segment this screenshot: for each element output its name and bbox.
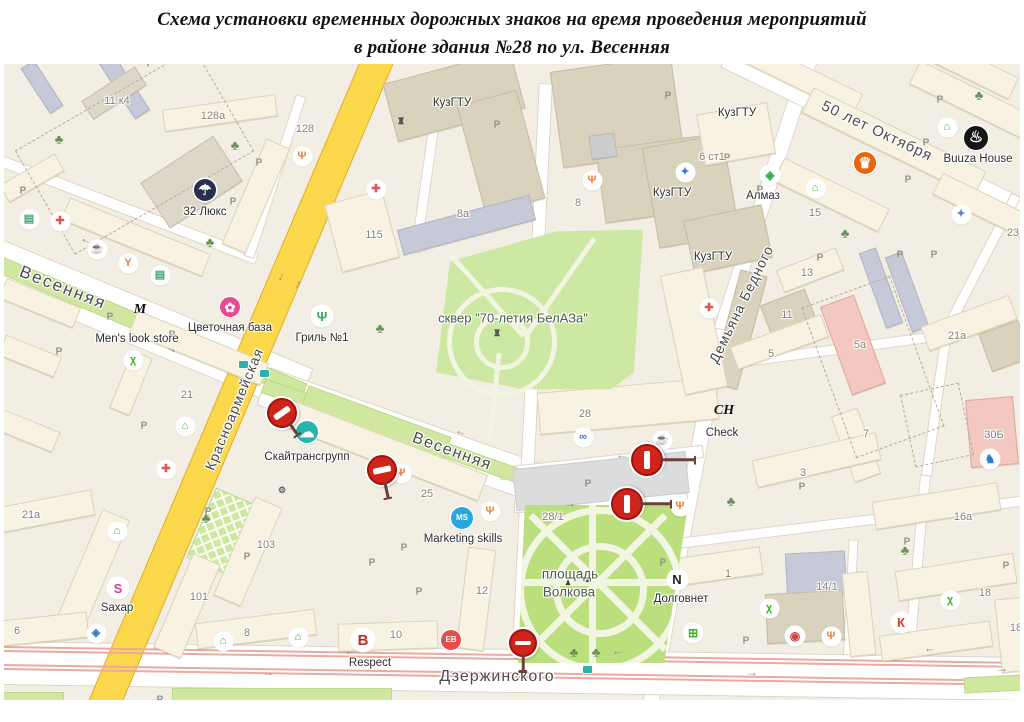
map-content: ♣♣♣♣♣♣♣♣♣♣♣→→→→→→→→→→→→→PPPPPPPPPPPPPPPP…: [4, 64, 1020, 700]
transit-stop-icon: [582, 665, 593, 674]
parking-mark: P: [56, 347, 63, 358]
building: [21, 64, 64, 114]
building-number: 11 к4: [104, 95, 129, 107]
tree-icon: ♣: [570, 645, 579, 660]
check-icon: CH: [714, 403, 734, 419]
poi-label: Check: [706, 427, 739, 439]
restaurant-icon: Ψ: [672, 498, 689, 515]
person-icon: χ: [125, 352, 142, 369]
eb-icon: ЕВ: [441, 630, 461, 650]
person-icon: χ: [942, 592, 959, 609]
hydrant-icon: ⚙: [275, 483, 289, 497]
parking-mark: P: [401, 543, 408, 554]
poi-label: Men's look store: [95, 333, 178, 345]
tree-icon: ♣: [55, 132, 64, 147]
page-title: Схема установки временных дорожных знако…: [0, 6, 1024, 61]
eco-house-icon: ⌂: [939, 119, 956, 136]
no-entry-bar: [273, 406, 290, 420]
tree-icon: ♣: [841, 226, 850, 241]
person-icon: χ: [761, 600, 778, 617]
parking-mark: P: [743, 636, 750, 647]
fitness-icon: ∞: [575, 429, 592, 446]
building-number: 8: [244, 627, 250, 639]
poi-label: Marketing skills: [424, 533, 503, 545]
monument-icon: ♜: [394, 114, 408, 128]
poi-label: Скайтрансгрупп: [264, 451, 349, 463]
building-number: 6: [14, 625, 20, 637]
tree-icon: ♣: [376, 321, 385, 336]
direction-arrow: →: [564, 496, 576, 510]
restaurant-icon: Ψ: [294, 148, 311, 165]
no-entry-sign: [611, 488, 643, 520]
parking-mark: P: [937, 95, 944, 106]
street-label: Волкова: [543, 585, 595, 600]
restaurant-icon: Ψ: [584, 172, 601, 189]
sign-pole: [522, 655, 525, 671]
building: [588, 132, 617, 159]
road-signs-scheme-page: Схема установки временных дорожных знако…: [0, 0, 1024, 722]
building-number: 13: [801, 267, 813, 279]
poi-label: Цветочная база: [188, 322, 272, 334]
pharmacy-icon: ✚: [52, 213, 69, 230]
poi-label: КузГТУ: [694, 251, 732, 263]
building-number: 6 ст1: [699, 151, 725, 163]
respect-icon: В: [352, 629, 374, 651]
parking-mark: P: [369, 558, 376, 569]
parking-mark: P: [141, 421, 148, 432]
title-line-2: в районе здания №28 по ул. Весенняя: [0, 34, 1024, 62]
building-number: 25: [421, 488, 433, 500]
direction-arrow: →: [612, 648, 624, 662]
page-margin: [0, 0, 4, 722]
tree-icon: ♣: [592, 645, 601, 660]
building: [4, 405, 60, 452]
building: [676, 546, 763, 585]
street-label: 50 лет Октября: [819, 97, 935, 164]
direction-arrow: →: [996, 661, 1008, 675]
poi-label: КузГТУ: [653, 187, 691, 199]
building-number: 21а: [22, 509, 40, 521]
building: [871, 482, 1001, 530]
building-number: 30Б: [984, 429, 1003, 441]
building-number: 12: [476, 585, 488, 597]
eco-house-icon: ⌂: [215, 633, 232, 650]
building-number: 21: [181, 389, 193, 401]
page-margin: [0, 700, 1024, 722]
building-number: 3: [800, 467, 806, 479]
building: [4, 489, 96, 532]
green-strip: [4, 692, 64, 700]
eco-house-icon: ⌂: [109, 523, 126, 540]
building-number: 8: [575, 197, 581, 209]
poi-label: КузГТУ: [718, 107, 756, 119]
sign-pole: [660, 459, 694, 462]
poi-label: Долговнет: [654, 593, 709, 605]
tree-icon: ♣: [206, 235, 215, 250]
atm-icon: ▤: [21, 211, 38, 228]
tree-icon: ♣: [727, 494, 736, 509]
parking-mark: P: [905, 175, 912, 186]
building-number: 115: [365, 229, 383, 241]
page-margin: [1020, 0, 1024, 722]
pharmacy-icon: ✚: [701, 300, 718, 317]
parking-mark: P: [230, 197, 237, 208]
marketing-skills-icon: MS: [451, 507, 473, 529]
atm-icon: ▤: [152, 267, 169, 284]
parking-mark: P: [799, 482, 806, 493]
mens-look-icon: M: [134, 302, 146, 318]
direction-arrow: →: [262, 665, 274, 679]
poi-label: Saxap: [101, 602, 134, 614]
restaurant-icon: Ψ: [823, 628, 840, 645]
building-number: 103: [257, 539, 275, 551]
building-number: 5: [768, 348, 774, 360]
no-entry-bar: [373, 466, 391, 475]
cart-icon: ⊞: [684, 624, 702, 642]
map-canvas: ♣♣♣♣♣♣♣♣♣♣♣→→→→→→→→→→→→→PPPPPPPPPPPPPPPP…: [4, 64, 1020, 700]
building-number: 8а: [457, 208, 469, 220]
flower-shop-icon: ✿: [220, 297, 240, 317]
parking-mark: P: [107, 312, 114, 323]
poi-label: 32 Люкс: [183, 206, 226, 218]
pharmacy-icon: ✚: [368, 181, 385, 198]
dog-icon: ♞: [981, 450, 999, 468]
pharmacy-icon: ✚: [158, 461, 175, 478]
cafe-icon: ☕: [89, 241, 106, 258]
poi-label: КузГТУ: [433, 97, 471, 109]
building-number: 16а: [954, 511, 972, 523]
parking-mark: P: [585, 479, 592, 490]
building-number: 11: [781, 309, 792, 321]
direction-arrow: →: [746, 665, 758, 679]
no-entry-sign: [631, 444, 663, 476]
green-strip: [172, 688, 392, 700]
building-number: 128: [296, 123, 314, 135]
crown-icon: ♛: [854, 152, 876, 174]
poi-label: Гриль №1: [295, 332, 348, 344]
street-label: сквер "70-летия БелАЗа": [438, 311, 588, 326]
saxap-icon: S: [108, 578, 128, 598]
poi-label: Respect: [349, 657, 391, 669]
poi-label: Buuza House: [943, 153, 1012, 165]
direction-arrow: →: [616, 452, 628, 466]
parking-mark: P: [256, 158, 263, 169]
no-entry-bar: [624, 495, 630, 513]
parking-mark: P: [416, 587, 423, 598]
building-number: 18: [1010, 622, 1020, 634]
poi-label: Алмаз: [746, 190, 780, 202]
scooter-icon: ✦: [953, 206, 970, 223]
parking-mark: P: [660, 558, 667, 569]
grill-icon: Ψ: [312, 306, 332, 326]
luks-hotel-icon: ☂: [194, 179, 216, 201]
title-line-1: Схема установки временных дорожных знако…: [0, 6, 1024, 34]
no-entry-bar: [644, 451, 650, 469]
parking-mark: P: [147, 64, 154, 70]
monument-icon: ♜: [490, 326, 504, 340]
building-number: 23: [1007, 227, 1019, 239]
k-store-icon: К: [892, 613, 911, 632]
kiosk-icon: ◈: [88, 625, 105, 642]
parking-mark: P: [494, 120, 501, 131]
eye-icon: ◉: [786, 627, 804, 645]
green-strip: [964, 674, 1020, 693]
building-number: 10: [390, 629, 402, 641]
tree-icon: ♣: [975, 88, 984, 103]
building-number: 28: [579, 408, 591, 420]
tree-icon: ♣: [231, 138, 240, 153]
parking-mark: P: [1003, 561, 1010, 572]
street-label: площадь: [542, 567, 598, 582]
parking-mark: P: [897, 250, 904, 261]
building: [456, 547, 496, 652]
parking-mark: P: [665, 91, 672, 102]
building-number: 7: [863, 428, 869, 440]
no-entry-sign: [509, 629, 537, 657]
tree-icon: ♣: [202, 511, 211, 526]
eco-house-icon: ⌂: [177, 418, 194, 435]
buuza-house-icon: ♨: [964, 126, 988, 150]
parking-mark: P: [817, 253, 824, 264]
parking-mark: P: [244, 552, 251, 563]
eco-house-icon: ⌂: [290, 629, 307, 646]
sign-pole: [383, 482, 389, 498]
building-number: 5а: [854, 339, 866, 351]
building-number: 128а: [201, 110, 225, 122]
dolgovnet-icon: N: [668, 570, 687, 589]
street-label: Дзержинского: [439, 668, 554, 686]
restaurant-icon: Ψ: [482, 503, 499, 520]
dashed-boundary: [900, 383, 974, 468]
building-number: 1: [725, 568, 731, 580]
building-number: 101: [190, 591, 208, 603]
sign-pole: [640, 503, 670, 506]
building-number: 18: [979, 587, 991, 599]
building: [324, 189, 400, 272]
building-number: 28/1: [542, 511, 563, 523]
building-number: 21а: [948, 330, 966, 342]
eco-house-icon: ⌂: [807, 180, 824, 197]
parking-mark: P: [20, 186, 27, 197]
parking-mark: P: [931, 250, 938, 261]
direction-arrow: →: [924, 645, 936, 659]
tree-icon: ♣: [901, 543, 910, 558]
building-number: 15: [809, 207, 821, 219]
building-number: 14/1: [816, 581, 837, 593]
kuzgtu-logo-icon: ✦: [677, 164, 694, 181]
bar-icon: Y: [120, 255, 137, 272]
building: [4, 335, 62, 378]
no-entry-bar: [515, 641, 531, 646]
transit-stop-icon: [259, 369, 270, 378]
almaz-diamond-icon: ◈: [761, 166, 779, 184]
